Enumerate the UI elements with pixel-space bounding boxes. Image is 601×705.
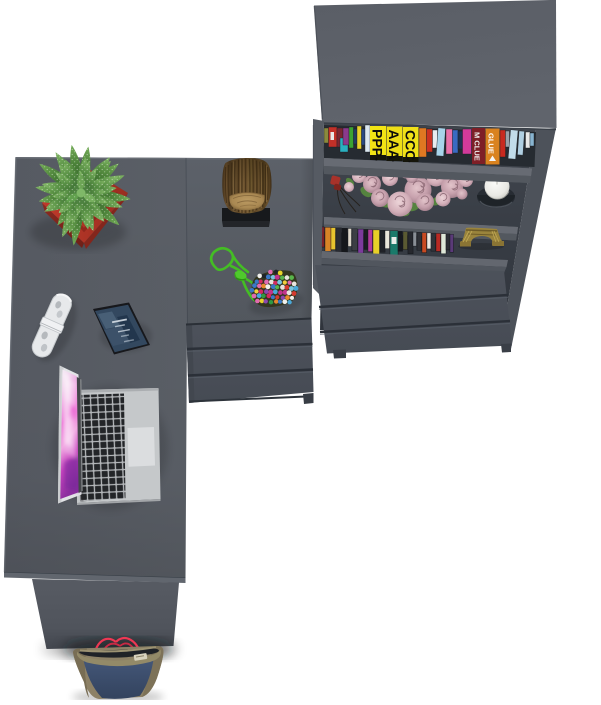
svg-text:M CLUE: M CLUE [473,132,482,161]
svg-text:PPP-: PPP- [370,129,386,162]
svg-text:GLUE: GLUE [487,133,496,154]
svg-text:AAA-: AAA- [386,130,402,165]
